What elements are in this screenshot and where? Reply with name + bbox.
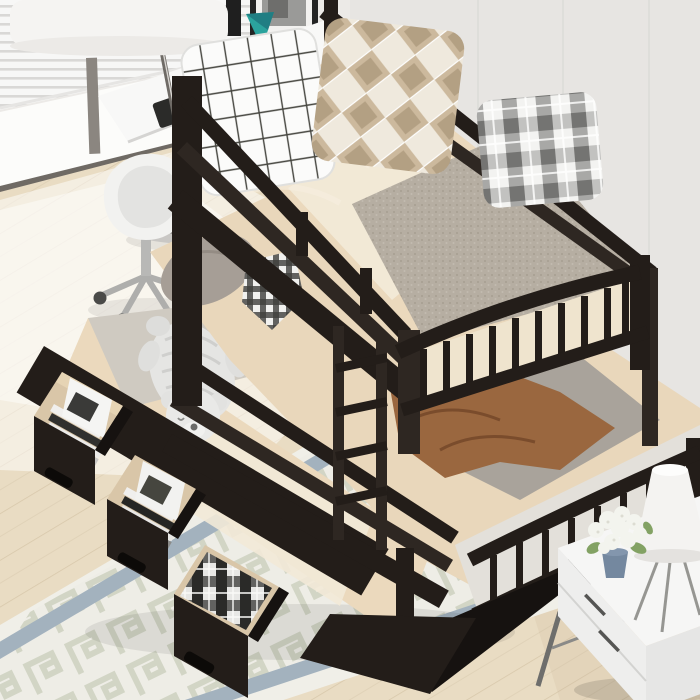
scene-canvas xyxy=(0,0,700,700)
ladder-rail-left xyxy=(333,326,344,540)
table-lamp-shade-top xyxy=(652,464,688,476)
chair-stem xyxy=(141,238,151,276)
pillow-buffalo-plaid xyxy=(476,91,605,209)
bear-nose xyxy=(191,424,198,431)
product-photo-bunk-bed xyxy=(0,0,700,700)
guardrail-post-a xyxy=(296,212,308,256)
head-post xyxy=(172,76,202,406)
bear-leg-left xyxy=(146,316,170,336)
picture-frame-small xyxy=(226,0,241,36)
guardrail-post-b xyxy=(360,268,372,314)
pillow-argyle xyxy=(310,16,467,176)
